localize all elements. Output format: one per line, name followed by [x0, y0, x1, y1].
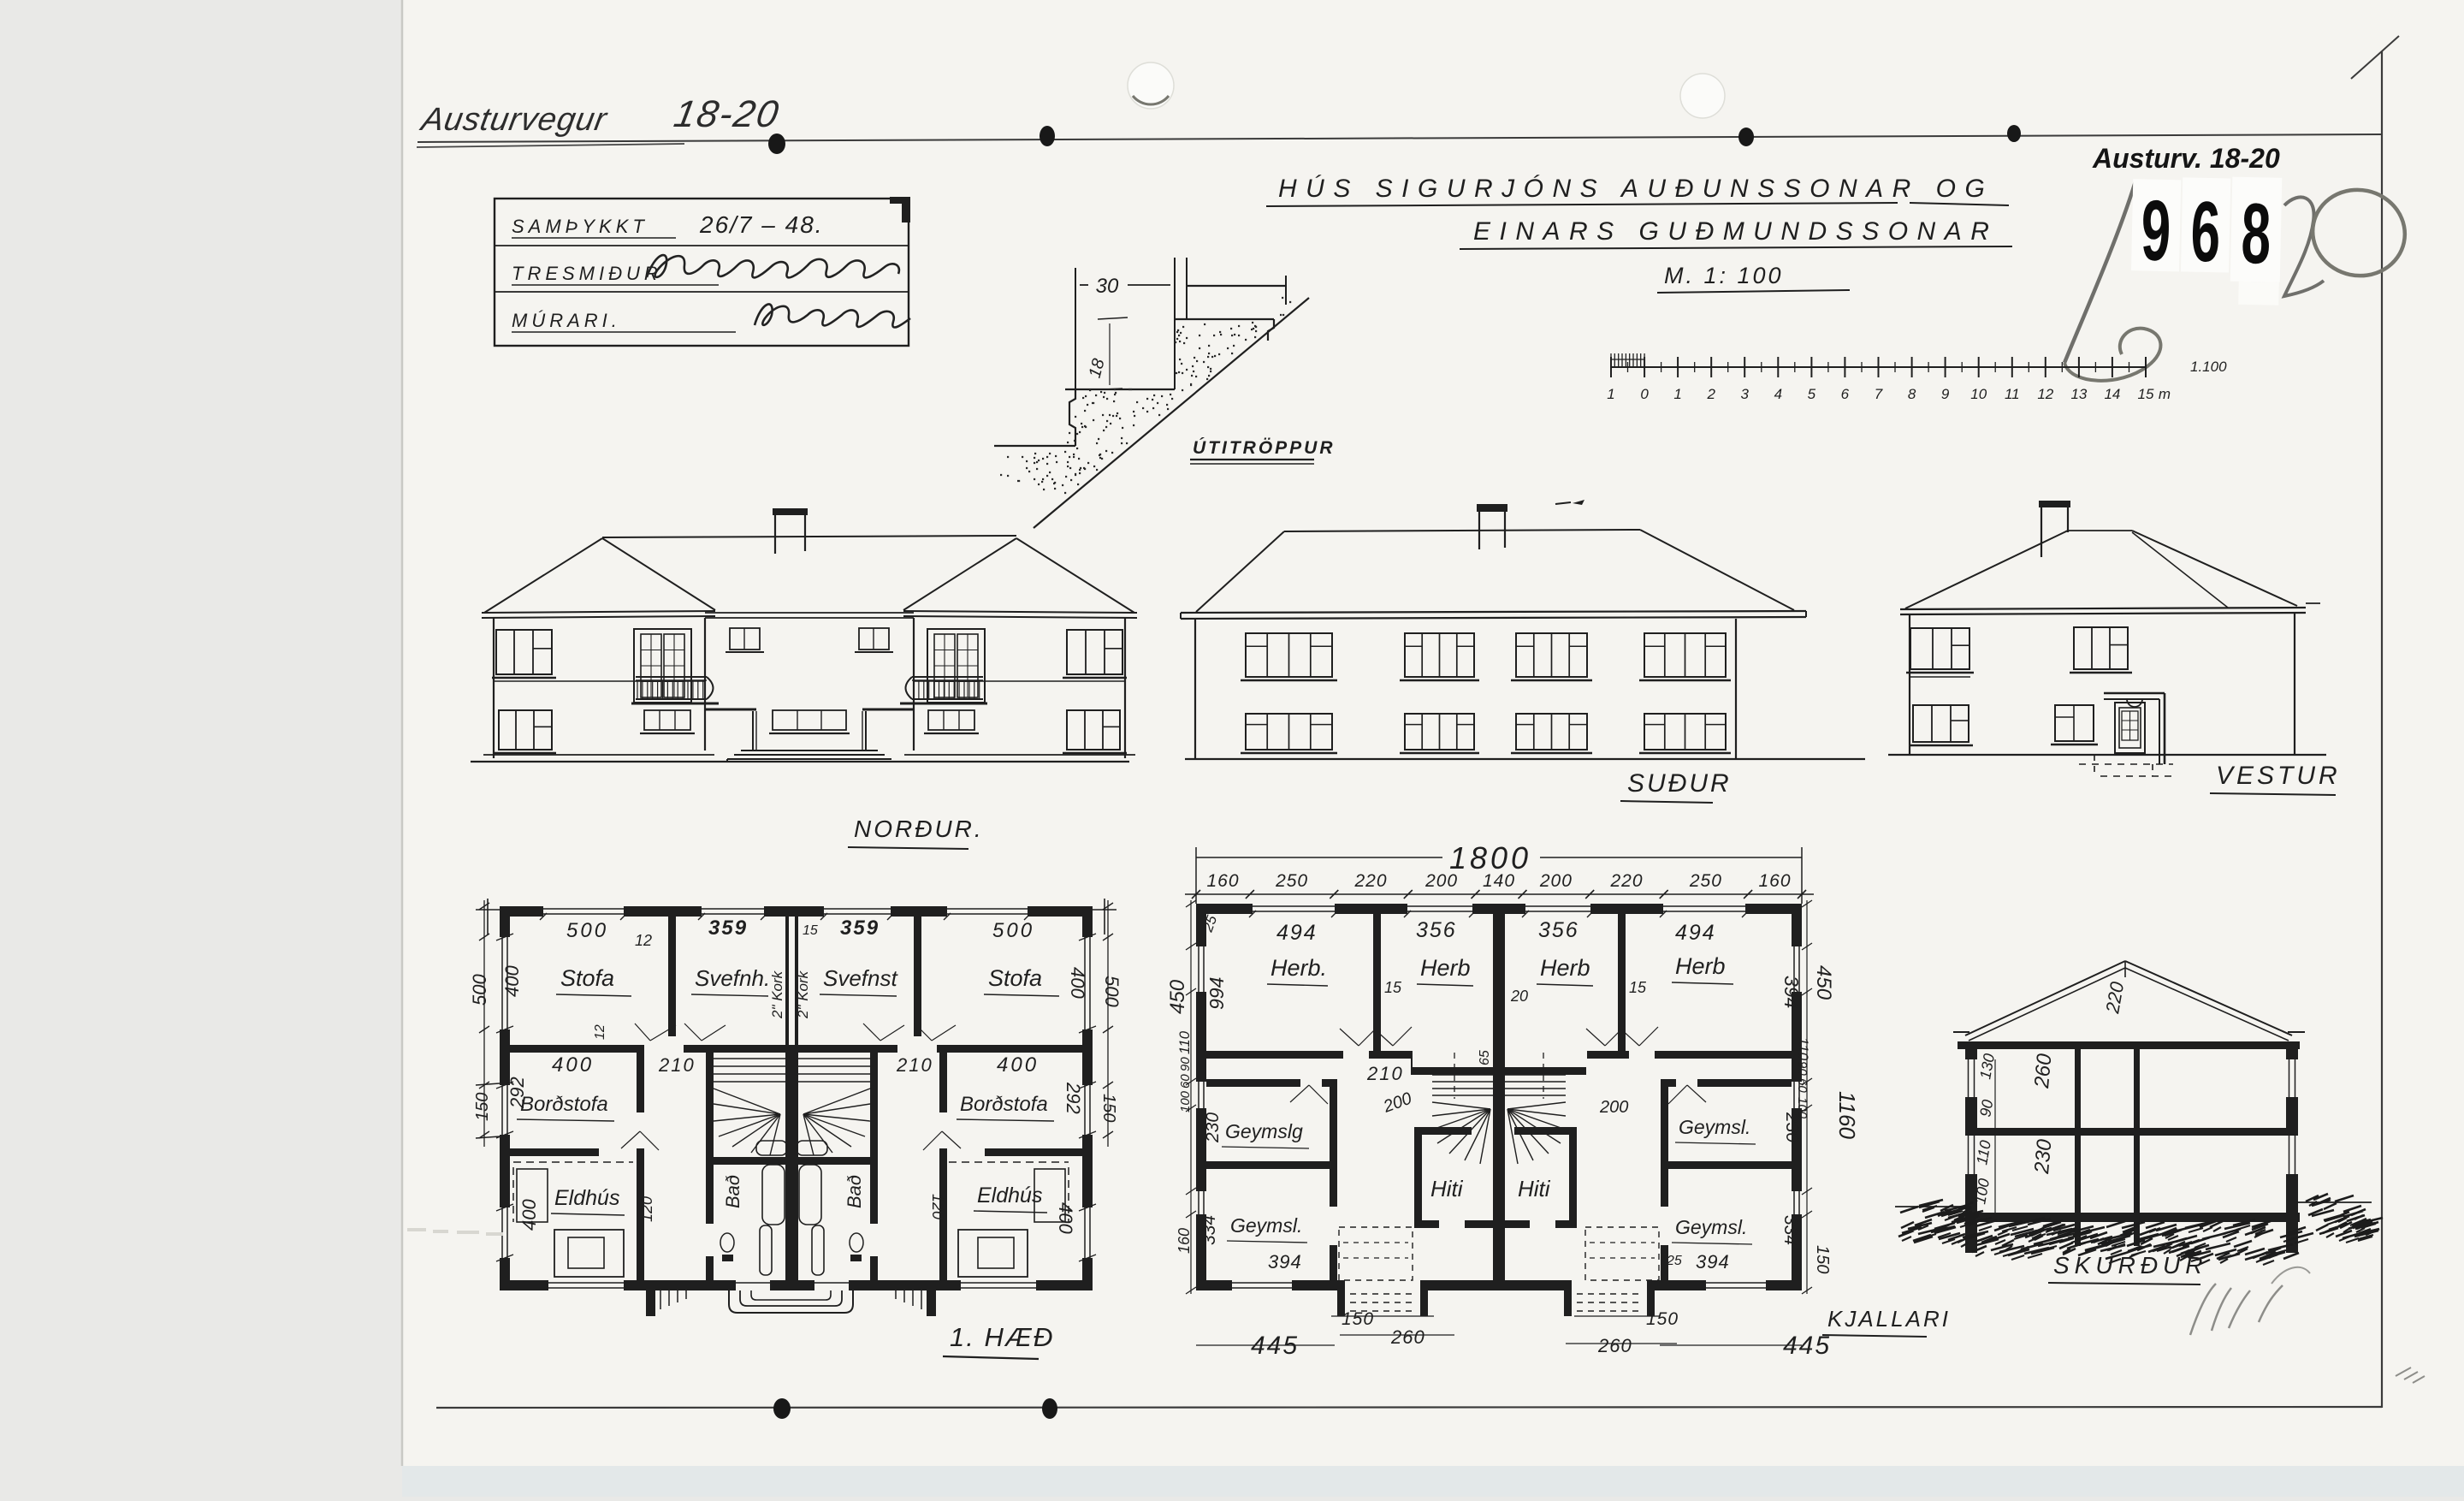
svg-text:250: 250 [1275, 871, 1308, 891]
svg-text:400: 400 [1067, 967, 1088, 999]
svg-text:12: 12 [635, 932, 652, 949]
svg-text:11: 11 [2005, 386, 2020, 402]
svg-text:210: 210 [1366, 1063, 1404, 1084]
svg-text:230: 230 [1203, 1112, 1223, 1143]
svg-text:4: 4 [1774, 386, 1782, 402]
svg-text:Bað: Bað [844, 1175, 865, 1208]
svg-text:394: 394 [1268, 1251, 1302, 1273]
svg-text:160: 160 [1176, 1228, 1193, 1254]
svg-text:8: 8 [2241, 186, 2272, 282]
svg-text:356: 356 [1416, 918, 1457, 942]
svg-text:2" Kork: 2" Kork [795, 970, 811, 1019]
svg-text:Herb.: Herb. [1270, 955, 1327, 981]
svg-text:Austurv. 18-20: Austurv. 18-20 [2092, 143, 2280, 174]
svg-text:210: 210 [658, 1054, 696, 1076]
svg-text:15: 15 [1384, 979, 1402, 996]
svg-text:SAMÞYKKT: SAMÞYKKT [512, 216, 649, 237]
svg-text:394: 394 [1780, 976, 1803, 1008]
svg-text:HÚS SIGURJÓNS AUÐUNSSONAR OG: HÚS SIGURJÓNS AUÐUNSSONAR OG [1278, 175, 1993, 203]
svg-text:13: 13 [2070, 386, 2087, 402]
svg-text:8: 8 [1908, 386, 1916, 402]
svg-text:500: 500 [1101, 976, 1122, 1007]
svg-text:200: 200 [1599, 1098, 1628, 1117]
svg-text:1800: 1800 [1449, 840, 1531, 875]
svg-text:150: 150 [1813, 1245, 1832, 1273]
svg-text:400: 400 [501, 965, 523, 997]
svg-text:359: 359 [708, 917, 748, 940]
svg-text:220: 220 [1353, 871, 1387, 891]
svg-text:ÚTITRÖPPUR: ÚTITRÖPPUR [1193, 437, 1336, 458]
svg-text:334: 334 [1199, 1215, 1219, 1245]
svg-text:12: 12 [2037, 386, 2053, 402]
svg-text:500: 500 [566, 919, 608, 942]
svg-text:500: 500 [469, 974, 490, 1006]
svg-text:6: 6 [2190, 183, 2222, 279]
svg-text:494: 494 [1675, 921, 1716, 945]
svg-text:260: 260 [1390, 1326, 1425, 1348]
svg-text:150: 150 [1646, 1309, 1679, 1329]
svg-text:292: 292 [506, 1077, 528, 1109]
svg-text:150: 150 [1342, 1309, 1374, 1329]
svg-text:9: 9 [1941, 386, 1950, 402]
svg-text:Hiti: Hiti [1430, 1176, 1464, 1201]
svg-text:1.100: 1.100 [2190, 359, 2227, 375]
svg-text:400: 400 [552, 1053, 594, 1077]
svg-text:Geymsl.: Geymsl. [1679, 1116, 1750, 1138]
svg-text:160: 160 [1758, 871, 1791, 891]
svg-text:Stofa: Stofa [988, 965, 1042, 991]
svg-text:0: 0 [1640, 386, 1649, 402]
svg-text:994: 994 [1205, 977, 1228, 1010]
svg-text:Herb: Herb [1675, 953, 1726, 979]
svg-text:Eldhús: Eldhús [554, 1186, 619, 1210]
svg-text:Geymsl.: Geymsl. [1675, 1216, 1747, 1238]
svg-text:15: 15 [2138, 386, 2154, 402]
svg-text:18-20: 18-20 [671, 93, 783, 135]
svg-text:2" Kork: 2" Kork [769, 970, 785, 1019]
svg-text:292: 292 [1063, 1082, 1084, 1114]
svg-text:SKURÐUR: SKURÐUR [2053, 1252, 2207, 1279]
svg-text:2: 2 [1706, 386, 1715, 402]
svg-text:400: 400 [1055, 1202, 1076, 1234]
svg-text:Svefnst: Svefnst [823, 965, 898, 991]
svg-text:Stofa: Stofa [560, 965, 614, 991]
svg-text:150: 150 [473, 1093, 492, 1121]
svg-text:KJALLARI: KJALLARI [1827, 1306, 1951, 1332]
svg-text:160: 160 [1206, 871, 1239, 891]
svg-text:Geymslg: Geymslg [1225, 1120, 1303, 1142]
svg-text:MÚRARI.: MÚRARI. [512, 310, 621, 331]
svg-text:M. 1: 100: M. 1: 100 [1664, 263, 1784, 288]
svg-text:25: 25 [1666, 1254, 1682, 1268]
svg-text:NORÐUR.: NORÐUR. [854, 816, 984, 842]
svg-text:Austurvegur: Austurvegur [418, 101, 612, 138]
svg-text:110: 110 [1176, 1030, 1193, 1054]
svg-text:220: 220 [1609, 871, 1643, 891]
svg-text:260: 260 [1597, 1335, 1632, 1356]
svg-text:10: 10 [1970, 386, 1987, 402]
svg-text:110: 110 [1795, 1037, 1811, 1061]
svg-text:500: 500 [992, 919, 1034, 942]
svg-text:1160: 1160 [1834, 1091, 1860, 1139]
svg-text:210: 210 [896, 1054, 933, 1076]
svg-text:6: 6 [1841, 386, 1850, 402]
svg-text:TRESMIÐUR: TRESMIÐUR [512, 263, 662, 284]
svg-text:Svefnh.: Svefnh. [695, 965, 770, 991]
svg-text:334: 334 [1780, 1215, 1800, 1245]
svg-text:Borðstofa: Borðstofa [520, 1093, 608, 1116]
svg-text:400: 400 [518, 1199, 540, 1231]
svg-text:260: 260 [2030, 1053, 2057, 1090]
svg-text:Herb: Herb [1540, 955, 1590, 981]
svg-text:EINARS GUÐMUNDSSONAR: EINARS GUÐMUNDSSONAR [1473, 217, 1998, 246]
svg-text:356: 356 [1538, 918, 1579, 942]
svg-text:450: 450 [1812, 965, 1835, 1000]
svg-text:250: 250 [1689, 871, 1722, 891]
svg-text:65: 65 [1478, 1050, 1492, 1065]
svg-text:200: 200 [1424, 871, 1458, 891]
svg-text:Eldhús: Eldhús [977, 1184, 1042, 1207]
svg-text:14: 14 [2104, 386, 2120, 402]
svg-text:15: 15 [803, 923, 818, 938]
svg-text:m: m [2159, 386, 2171, 402]
svg-text:5: 5 [1808, 386, 1816, 402]
svg-text:12: 12 [593, 1024, 607, 1040]
svg-text:400: 400 [997, 1053, 1039, 1077]
svg-text:450: 450 [1166, 979, 1189, 1014]
svg-text:140: 140 [1483, 871, 1515, 891]
svg-text:1: 1 [1607, 386, 1614, 402]
svg-text:494: 494 [1276, 921, 1318, 945]
svg-text:SUÐUR: SUÐUR [1627, 769, 1732, 798]
svg-text:3: 3 [1740, 386, 1749, 402]
svg-text:359: 359 [840, 917, 880, 940]
svg-text:Borðstofa: Borðstofa [960, 1093, 1048, 1116]
svg-text:30: 30 [1096, 275, 1119, 298]
svg-text:Hiti: Hiti [1518, 1176, 1551, 1201]
svg-text:20: 20 [1510, 988, 1528, 1005]
svg-text:90: 90 [1976, 1098, 1996, 1118]
svg-text:230: 230 [2030, 1138, 2057, 1176]
svg-text:1. HÆÐ: 1. HÆÐ [950, 1322, 1054, 1352]
svg-text:26/7 – 48.: 26/7 – 48. [699, 211, 824, 238]
svg-text:9: 9 [2141, 182, 2172, 278]
svg-text:1: 1 [1673, 386, 1681, 402]
svg-text:200: 200 [1539, 871, 1573, 891]
svg-text:120: 120 [929, 1194, 946, 1219]
svg-text:120: 120 [638, 1196, 655, 1222]
svg-text:Bað: Bað [722, 1175, 743, 1208]
svg-text:394: 394 [1696, 1251, 1730, 1273]
svg-text:7: 7 [1875, 386, 1883, 402]
svg-text:Geymsl.: Geymsl. [1230, 1214, 1302, 1237]
svg-text:150: 150 [1099, 1094, 1118, 1122]
svg-text:Herb: Herb [1420, 955, 1471, 981]
svg-text:15: 15 [1629, 979, 1647, 996]
svg-text:VESTUR: VESTUR [2216, 762, 2341, 790]
